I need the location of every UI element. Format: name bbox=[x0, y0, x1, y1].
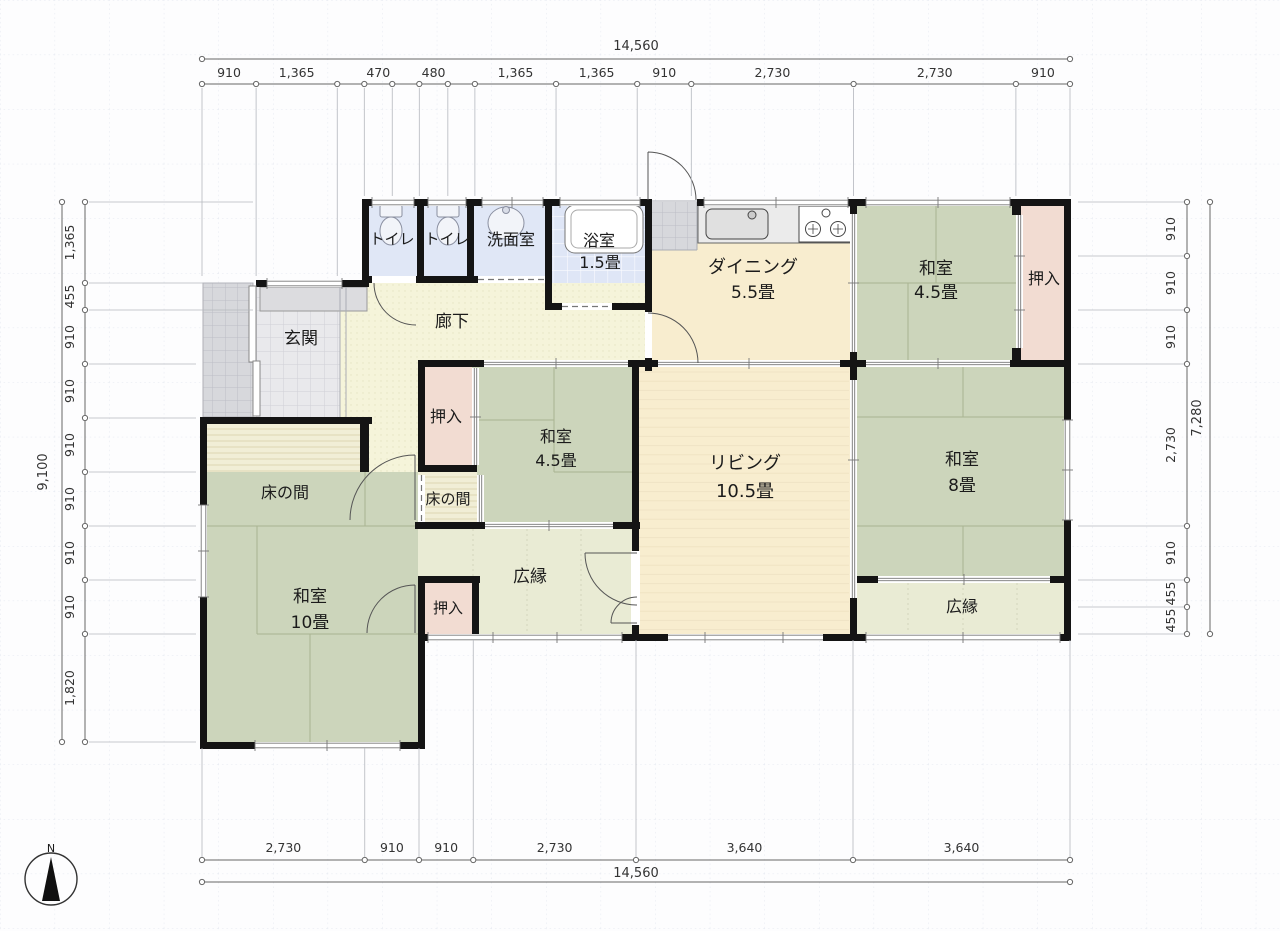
label-tokonoma-mid: 床の間 bbox=[425, 490, 470, 508]
dimension-value: 2,730 bbox=[265, 840, 301, 855]
dimension-tick bbox=[416, 857, 421, 862]
compass-north-label: N bbox=[47, 842, 55, 855]
wall-segment bbox=[545, 199, 552, 310]
floor-plan-drawing: トイレ トイレ 洗面室 浴室 1.5畳 ダイニング 5.5畳 和室 4.5畳 押… bbox=[0, 0, 1280, 931]
dimension-value: 910 bbox=[62, 487, 77, 511]
dimension-value: 480 bbox=[422, 65, 446, 80]
label-dining-size: 5.5畳 bbox=[731, 283, 775, 303]
dimension-total: 14,560 bbox=[613, 39, 659, 54]
wall-segment bbox=[417, 199, 424, 283]
dimension-tick bbox=[1184, 577, 1189, 582]
dimension-tick bbox=[82, 631, 87, 636]
dimension-value: 910 bbox=[62, 433, 77, 457]
label-bath-size: 1.5畳 bbox=[579, 253, 620, 272]
label-hiroen-right: 広縁 bbox=[946, 597, 978, 616]
wall-segment bbox=[200, 417, 372, 424]
kitchen-counter bbox=[698, 205, 854, 243]
wall-segment bbox=[418, 465, 477, 472]
dimension-tick bbox=[82, 577, 87, 582]
dimension-value: 1,365 bbox=[498, 65, 534, 80]
dimension-tick bbox=[689, 81, 694, 86]
label-bath: 浴室 bbox=[583, 231, 615, 250]
label-living-size: 10.5畳 bbox=[716, 481, 774, 502]
dimension-value: 910 bbox=[380, 840, 404, 855]
dimension-tick bbox=[362, 857, 367, 862]
dimension-value: 910 bbox=[62, 541, 77, 565]
dimension-tick bbox=[635, 81, 640, 86]
dimension-value: 1,365 bbox=[62, 225, 77, 261]
dimension-total: 14,560 bbox=[613, 866, 659, 881]
shoe-cabinet bbox=[260, 287, 367, 311]
backdoor-tile bbox=[652, 202, 697, 250]
label-oshiire-mid: 押入 bbox=[430, 407, 462, 426]
wall-segment bbox=[360, 417, 369, 472]
dimension-value: 910 bbox=[1031, 65, 1055, 80]
dimension-value: 910 bbox=[1163, 541, 1178, 565]
wall-segment bbox=[1012, 199, 1021, 215]
sliding-partition bbox=[850, 380, 857, 598]
dimension-tick bbox=[1184, 199, 1189, 204]
dimension-value: 455 bbox=[1163, 609, 1178, 633]
dimension-end-marker bbox=[199, 879, 204, 884]
entrance-porch bbox=[203, 283, 253, 417]
dimension-end-marker bbox=[199, 56, 204, 61]
wall-segment bbox=[645, 199, 652, 314]
dimension-tick bbox=[1013, 81, 1018, 86]
dimension-tick bbox=[850, 857, 855, 862]
label-toilet1: トイレ bbox=[369, 230, 414, 248]
label-dining: ダイニング bbox=[708, 257, 798, 278]
wall-segment bbox=[472, 583, 479, 641]
floor-plan-page: トイレ トイレ 洗面室 浴室 1.5畳 ダイニング 5.5畳 和室 4.5畳 押… bbox=[0, 0, 1280, 931]
dimension-value: 910 bbox=[62, 325, 77, 349]
dimension-tick bbox=[82, 739, 87, 744]
label-washitsu10: 和室 bbox=[293, 587, 327, 607]
label-oshiire-tr: 押入 bbox=[1028, 269, 1060, 288]
dimension-value: 2,730 bbox=[537, 840, 573, 855]
dimension-value: 2,730 bbox=[917, 65, 953, 80]
dimension-tick bbox=[1184, 631, 1189, 636]
dimension-tick bbox=[362, 81, 367, 86]
label-washitsu-tr-size: 4.5畳 bbox=[914, 283, 958, 303]
label-washitsu-mid: 和室 bbox=[540, 427, 572, 446]
dimension-value: 910 bbox=[217, 65, 241, 80]
label-oshiire-btm: 押入 bbox=[433, 599, 463, 617]
dimension-total: 9,100 bbox=[36, 453, 51, 490]
dimension-tick bbox=[82, 469, 87, 474]
label-washitsu10-size: 10畳 bbox=[291, 613, 330, 633]
dimension-end-marker bbox=[1207, 631, 1212, 636]
kitchen-sink-icon bbox=[706, 209, 768, 239]
dimension-tick bbox=[82, 415, 87, 420]
wall-segment bbox=[1012, 348, 1021, 367]
dimension-tick bbox=[1184, 253, 1189, 258]
dimension-value: 2,730 bbox=[1163, 427, 1178, 463]
dimension-value: 470 bbox=[366, 65, 390, 80]
dimension-tick bbox=[633, 857, 638, 862]
dimension-value: 1,820 bbox=[62, 670, 77, 706]
dimension-value: 2,730 bbox=[755, 65, 791, 80]
label-genkan: 玄関 bbox=[284, 329, 318, 349]
dimension-value: 455 bbox=[1163, 582, 1178, 606]
wall-segment bbox=[418, 634, 425, 749]
label-tokonoma-left: 床の間 bbox=[261, 483, 309, 502]
dimension-tick bbox=[390, 81, 395, 86]
dimension-tick bbox=[471, 857, 476, 862]
wall-segment bbox=[418, 364, 425, 472]
dimension-end-marker bbox=[59, 739, 64, 744]
dimension-value: 910 bbox=[62, 595, 77, 619]
dimension-value: 910 bbox=[62, 379, 77, 403]
dimension-value: 910 bbox=[1163, 217, 1178, 241]
dimension-tick bbox=[82, 280, 87, 285]
label-hiroen-center: 広縁 bbox=[513, 567, 547, 587]
wall-segment bbox=[418, 576, 480, 583]
dimension-tick bbox=[82, 307, 87, 312]
dimension-tick bbox=[199, 81, 204, 86]
dimension-tick bbox=[199, 857, 204, 862]
dimension-value: 455 bbox=[62, 285, 77, 309]
dimension-end-marker bbox=[1067, 879, 1072, 884]
dimension-value: 1,365 bbox=[279, 65, 315, 80]
label-rouka: 廊下 bbox=[435, 312, 469, 332]
dimension-tick bbox=[254, 81, 259, 86]
stove-icon bbox=[799, 206, 851, 242]
wall-segment bbox=[362, 199, 369, 287]
label-living: リビング bbox=[709, 453, 781, 474]
label-washitsu8-size: 8畳 bbox=[948, 476, 976, 496]
dimension-tick bbox=[1184, 523, 1189, 528]
dimension-tick bbox=[553, 81, 558, 86]
label-washitsu8: 和室 bbox=[945, 450, 979, 470]
dimension-tick bbox=[1184, 307, 1189, 312]
sliding-partition bbox=[1016, 215, 1023, 348]
dimension-end-marker bbox=[1207, 199, 1212, 204]
label-toilet2: トイレ bbox=[424, 230, 469, 248]
room-living-floor bbox=[636, 364, 854, 641]
label-washroom: 洗面室 bbox=[487, 230, 535, 249]
dimension-value: 910 bbox=[434, 840, 458, 855]
room-tokonoma-left-floor bbox=[203, 420, 362, 472]
label-washitsu-tr: 和室 bbox=[919, 259, 953, 279]
dimension-tick bbox=[1067, 857, 1072, 862]
dimension-value: 910 bbox=[1163, 271, 1178, 295]
wall-segment bbox=[418, 583, 425, 641]
dimension-tick bbox=[335, 81, 340, 86]
dimension-tick bbox=[851, 81, 856, 86]
dimension-end-marker bbox=[1067, 56, 1072, 61]
dimension-total: 7,280 bbox=[1190, 399, 1205, 436]
dimension-value: 1,365 bbox=[579, 65, 615, 80]
dimension-value: 910 bbox=[1163, 325, 1178, 349]
dimension-tick bbox=[82, 199, 87, 204]
sliding-partition bbox=[477, 475, 484, 522]
dimension-tick bbox=[445, 81, 450, 86]
dimension-tick bbox=[1067, 81, 1072, 86]
sliding-partition bbox=[472, 368, 479, 465]
label-washitsu-mid-size: 4.5畳 bbox=[535, 451, 576, 470]
dimension-tick bbox=[1184, 361, 1189, 366]
dimension-tick bbox=[1184, 604, 1189, 609]
dimension-tick bbox=[472, 81, 477, 86]
dimension-tick bbox=[82, 523, 87, 528]
dimension-end-marker bbox=[59, 199, 64, 204]
dimension-value: 3,640 bbox=[727, 840, 763, 855]
dimension-tick bbox=[82, 361, 87, 366]
dimension-value: 910 bbox=[652, 65, 676, 80]
dimension-tick bbox=[417, 81, 422, 86]
dimension-value: 3,640 bbox=[944, 840, 980, 855]
